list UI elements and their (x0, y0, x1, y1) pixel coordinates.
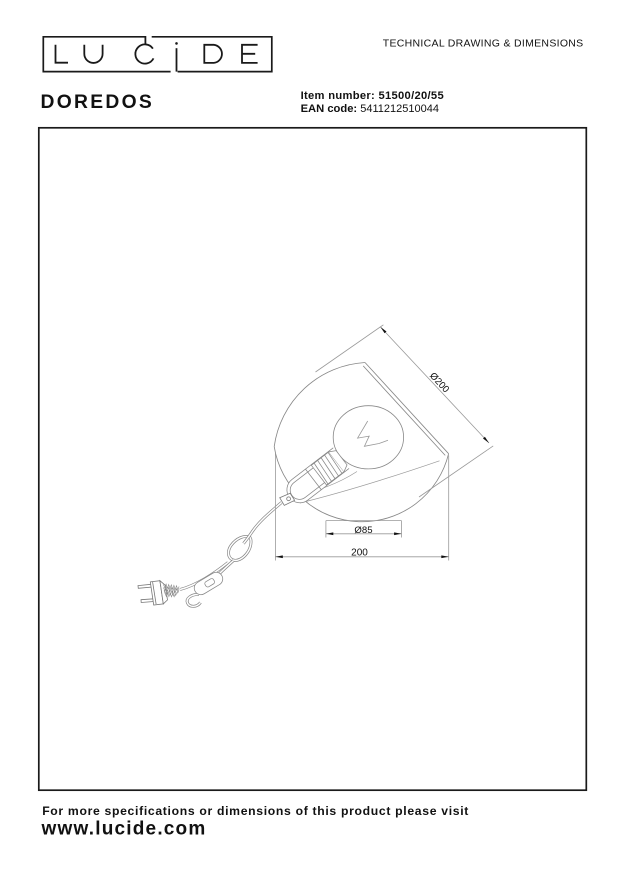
svg-text:200: 200 (351, 548, 368, 559)
svg-text:Ø200: Ø200 (427, 371, 451, 396)
svg-text:DOREDOS: DOREDOS (41, 92, 155, 113)
svg-text:TECHNICAL DRAWING & DIMENSIONS: TECHNICAL DRAWING & DIMENSIONS (383, 38, 584, 50)
svg-text:Ø85: Ø85 (354, 525, 372, 536)
svg-text:For more specifications or dim: For more specifications or dimensions of… (42, 804, 469, 818)
svg-text:EAN code: 5411212510044: EAN code: 5411212510044 (301, 103, 439, 115)
svg-text:Item number: 51500/20/55: Item number: 51500/20/55 (301, 90, 444, 102)
svg-text:www.lucide.com: www.lucide.com (41, 819, 207, 840)
